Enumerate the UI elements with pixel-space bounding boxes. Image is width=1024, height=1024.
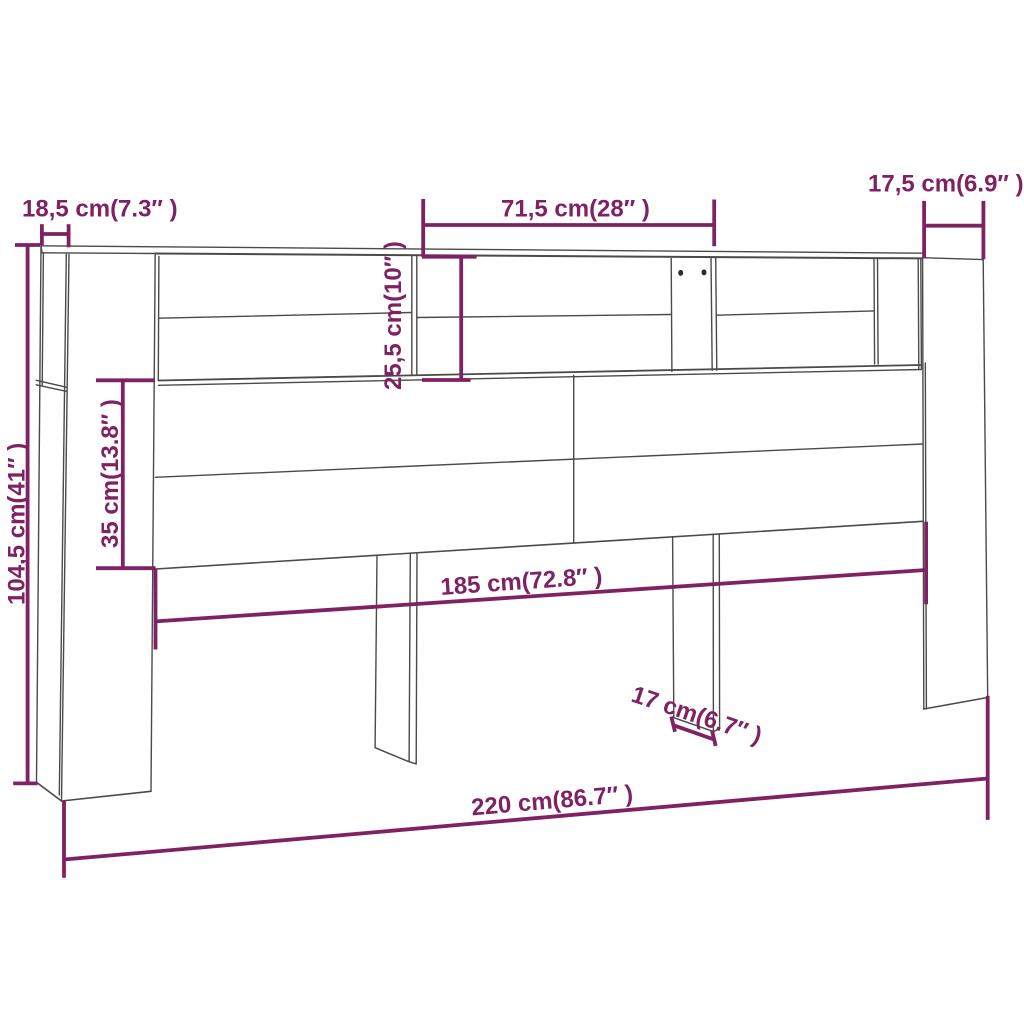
svg-text:25,5 cm(10″ ): 25,5 cm(10″ )	[380, 241, 407, 390]
svg-text:18,5 cm(7.3″ ): 18,5 cm(7.3″ )	[22, 196, 178, 223]
svg-text:104,5 cm(41″ ): 104,5 cm(41″ )	[4, 443, 31, 605]
svg-text:17 cm(6.7″ ): 17 cm(6.7″ )	[628, 681, 765, 750]
svg-text:185 cm(72.8″ ): 185 cm(72.8″ )	[440, 563, 604, 601]
svg-text:35 cm(13.8″ ): 35 cm(13.8″ )	[97, 399, 124, 548]
svg-text:71,5 cm(28″ ): 71,5 cm(28″ )	[501, 196, 650, 223]
svg-text:17,5 cm(6.9″ ): 17,5 cm(6.9″ )	[868, 171, 1024, 198]
